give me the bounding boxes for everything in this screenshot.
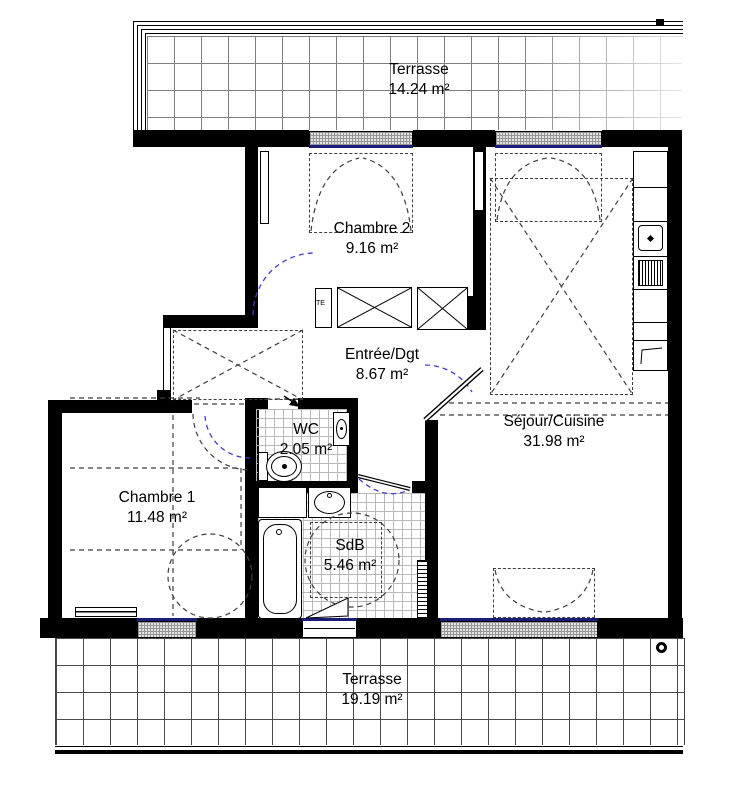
toilet-drain [282, 464, 287, 469]
sdb-door-leaf-inner [358, 476, 410, 489]
window-sejour-top-glazing [495, 145, 602, 148]
room-area: 5.46 m² [324, 556, 377, 576]
window-sejour-top [495, 131, 602, 146]
entrance-door-leaf [425, 369, 482, 420]
wall-niche [474, 151, 484, 211]
kitchen-cabinet [633, 187, 668, 222]
room-name: Terrasse [341, 670, 402, 690]
door-swing-arc-entrance [425, 365, 472, 392]
room-label-entree: Entrée/Dgt 8.67 m² [345, 345, 419, 385]
door-swing-arc-chambre1-blue [205, 416, 250, 458]
kitchen-zone-box [490, 178, 633, 395]
entry-bay-frame [163, 328, 171, 402]
wall-entree-top [163, 315, 258, 328]
window-chambre1 [137, 621, 197, 638]
sdb-door-leaf [358, 476, 410, 489]
radiator-sdb [417, 560, 428, 618]
terrace-drain [656, 642, 667, 653]
door-swing-arc-chambre1 [193, 414, 250, 470]
wall-top-left [133, 130, 309, 147]
room-name: Entrée/Dgt [345, 345, 419, 365]
electrical-panel-box [315, 288, 332, 328]
room-name: WC [280, 420, 333, 440]
room-name: Séjour/Cuisine [504, 412, 605, 432]
floor-plan: TE [0, 0, 748, 800]
kitchen-fridge [633, 340, 668, 371]
room-area: 2.05 m² [280, 440, 333, 460]
wc-handbasin-drain [340, 427, 343, 430]
radiator-chambre2 [260, 151, 269, 224]
room-area: 14.24 m² [388, 80, 449, 100]
window-chambre2-glazing [309, 145, 413, 148]
sejour-frenchdoor-swing-box [493, 568, 595, 618]
door-swing-arc-chambre2 [253, 253, 315, 315]
wall-wc-top-b [298, 398, 348, 409]
kitchen-cabinet [633, 151, 668, 188]
wall-right [668, 130, 682, 638]
wall-chambre2-left [245, 130, 258, 328]
electrical-panel-label: TE [316, 300, 325, 307]
washing-machine [258, 487, 307, 518]
window-sdb-frame-line [304, 628, 355, 629]
kitchen-cabinet [633, 289, 668, 323]
room-name: Terrasse [388, 60, 449, 80]
window-sejour-bottom [440, 621, 598, 638]
room-label-sdb: SdB 5.46 m² [324, 536, 377, 576]
room-area: 19.19 m² [341, 690, 402, 710]
wall-closet-end [468, 296, 486, 330]
door-swing-arc-sdb [359, 479, 409, 494]
room-name: Chambre 2 [334, 219, 411, 239]
room-label-sejour: Séjour/Cuisine 31.98 m² [504, 412, 605, 452]
wall-bottom-d [598, 618, 683, 638]
room-area: 9.16 m² [334, 239, 411, 259]
bathtub-drain [276, 529, 282, 535]
sdb-washbasin-drain [327, 493, 332, 498]
wall-left [48, 400, 62, 638]
terrace-bottom-railing [55, 746, 683, 747]
entry-closet-box [173, 330, 303, 400]
window-chambre2 [309, 131, 413, 146]
room-label-wc: WC 2.05 m² [280, 420, 333, 460]
terrace-bottom-railing [55, 750, 683, 754]
room-name: Chambre 1 [119, 488, 196, 508]
room-area: 31.98 m² [504, 432, 605, 452]
room-label-terrasse-bottom: Terrasse 19.19 m² [341, 670, 402, 710]
room-name: SdB [324, 536, 377, 556]
wall-bottom-a [40, 618, 137, 638]
room-area: 11.48 m² [119, 508, 196, 528]
room-label-chambre1: Chambre 1 11.48 m² [119, 488, 196, 528]
railing-end-tick [656, 19, 664, 25]
wall-bottom-b [197, 618, 302, 638]
room-area: 8.67 m² [345, 365, 419, 385]
bathtub-inner [263, 524, 297, 614]
closet-chambre2 [337, 287, 412, 328]
room-label-chambre2: Chambre 2 9.16 m² [334, 219, 411, 259]
kitchen-drainer [638, 260, 663, 286]
entrance-door-leaf-inner [425, 369, 482, 420]
radiator-chambre1 [75, 607, 137, 617]
chambre1-clearance-circle [168, 534, 252, 618]
closet-chambre2 [417, 287, 468, 330]
wall-bottom-c [357, 618, 440, 638]
window-sdb-glazing [302, 618, 357, 621]
room-label-terrasse-top: Terrasse 14.24 m² [388, 60, 449, 100]
kitchen-cabinet [633, 322, 668, 341]
